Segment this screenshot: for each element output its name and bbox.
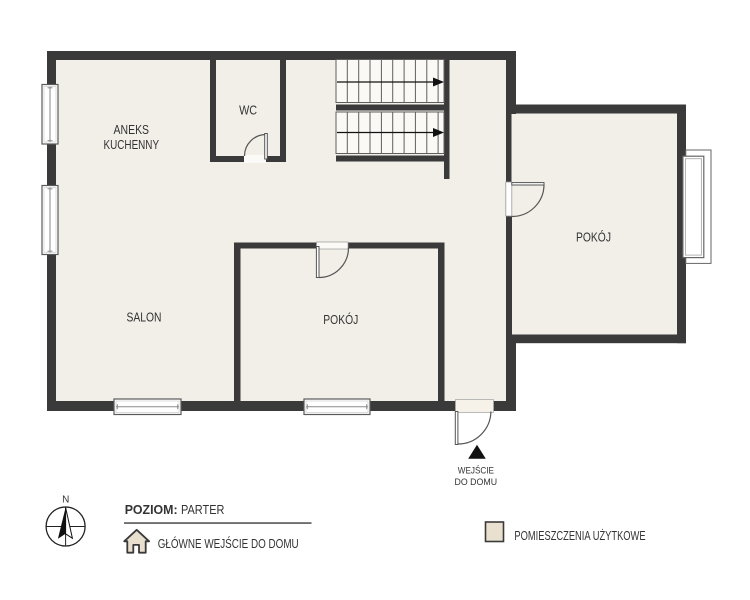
svg-text:POKÓJ: POKÓJ [576, 230, 611, 245]
svg-text:GŁÓWNE WEJŚCIE DO DOMU: GŁÓWNE WEJŚCIE DO DOMU [158, 536, 299, 551]
svg-text:N: N [62, 495, 69, 506]
svg-text:POZIOM:: POZIOM: [125, 502, 178, 517]
svg-text:WC: WC [239, 103, 257, 118]
svg-text:DO DOMU: DO DOMU [455, 477, 498, 488]
svg-text:POMIESZCZENIA UŻYTKOWE: POMIESZCZENIA UŻYTKOWE [514, 528, 645, 543]
svg-text:ANEKS: ANEKS [114, 122, 150, 137]
svg-text:POKÓJ: POKÓJ [323, 312, 358, 327]
svg-text:WEJŚCIE: WEJŚCIE [458, 465, 494, 477]
svg-text:PARTER: PARTER [181, 502, 224, 517]
svg-text:SALON: SALON [127, 310, 162, 325]
svg-text:KUCHENNY: KUCHENNY [104, 137, 160, 152]
